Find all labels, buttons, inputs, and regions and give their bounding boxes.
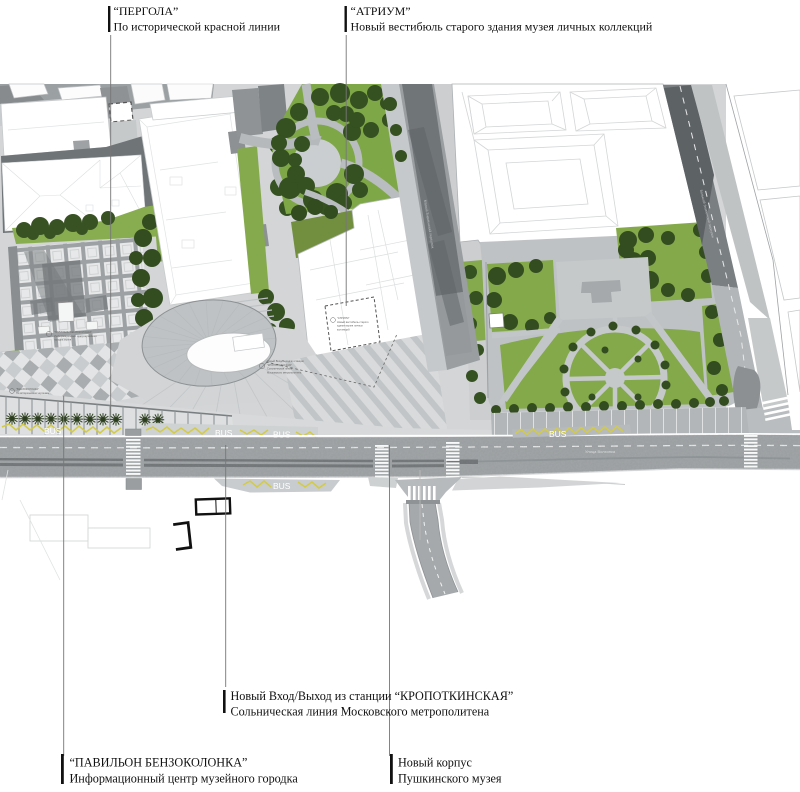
svg-text:Московского метрополитена: Московского метрополитена [267, 370, 302, 374]
svg-text:Новый Вход/Выход из станции “К: Новый Вход/Выход из станции “КРОПОТКИНСК… [231, 689, 514, 703]
svg-text:По исторической красной линии: По исторической красной линии [114, 20, 281, 34]
svg-text:"АТРИУМ": "АТРИУМ" [337, 316, 349, 320]
svg-text:“ПЕРГОЛА”: “ПЕРГОЛА” [114, 4, 179, 18]
svg-text:Новый вестибюль старого: Новый вестибюль старого [337, 320, 369, 324]
svg-text:BUS: BUS [273, 481, 291, 491]
svg-text:здания музея личных: здания музея личных [337, 325, 364, 328]
svg-text:Новый вестибюль старого здания: Новый вестибюль старого здания музея лич… [351, 20, 653, 34]
svg-text:"ПАВИЛЬОН БЕНЗОКОЛОНКА": "ПАВИЛЬОН БЕНЗОКОЛОНКА" [54, 330, 92, 334]
svg-text:"КРОПОТКИНСКАЯ": "КРОПОТКИНСКАЯ" [267, 363, 292, 367]
svg-text:Сольническая линия Московского: Сольническая линия Московского метрополи… [231, 705, 490, 719]
svg-text:Информационный центр музейного: Информационный центр музейного городка [70, 772, 299, 786]
svg-text:Сольническая линия: Сольническая линия [267, 367, 293, 371]
svg-text:“АТРИУМ”: “АТРИУМ” [351, 4, 411, 18]
svg-text:Новый Вход/Выход из станции: Новый Вход/Выход из станции [267, 359, 304, 363]
svg-text:коллекций: коллекций [337, 327, 350, 331]
svg-text:BUS: BUS [549, 429, 567, 439]
svg-text:По историческим чертежам: По историческим чертежам [16, 391, 49, 395]
svg-text:городка музея: городка музея [54, 339, 72, 342]
svg-text:Улица Волхонка: Улица Волхонка [585, 449, 616, 454]
svg-text:BUS: BUS [44, 426, 62, 436]
svg-text:"БЕНЗОКОЛОНКА": "БЕНЗОКОЛОНКА" [16, 387, 39, 391]
svg-text:Новый корпус: Новый корпус [398, 756, 473, 770]
svg-text:Информационный центр музейного: Информационный центр музейного [54, 334, 97, 338]
svg-text:Пушкинского музея: Пушкинского музея [398, 772, 502, 786]
svg-text:“ПАВИЛЬОН БЕНЗОКОЛОНКА”: “ПАВИЛЬОН БЕНЗОКОЛОНКА” [70, 756, 248, 770]
